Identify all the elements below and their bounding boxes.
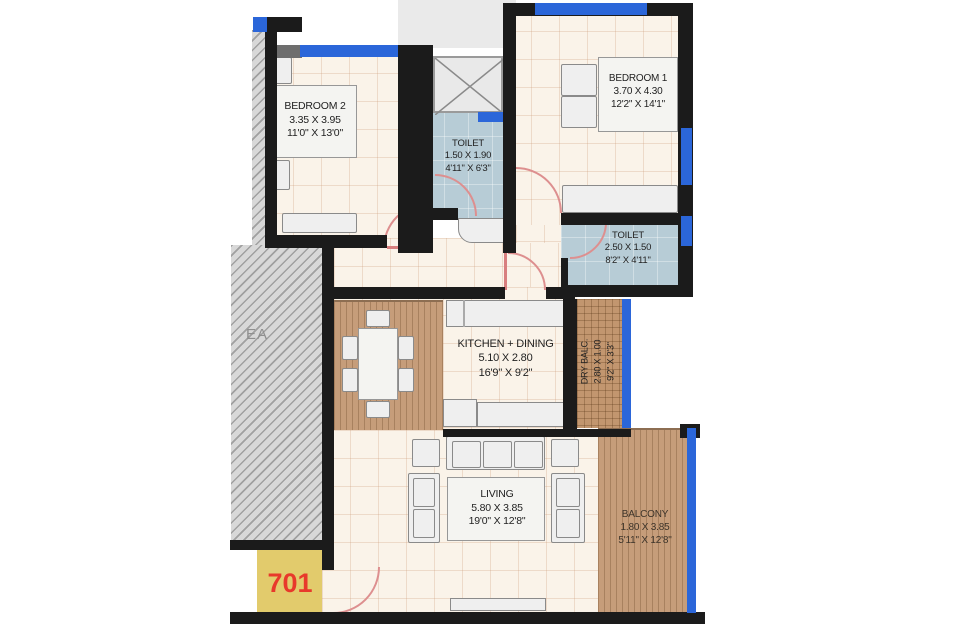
wall-step — [277, 45, 302, 58]
wall — [503, 3, 516, 253]
dining-chair — [398, 368, 414, 392]
door-arc-entry — [333, 567, 380, 614]
room-name: TOILET — [428, 138, 508, 150]
wall — [561, 213, 568, 222]
wall — [230, 540, 322, 550]
bedroom2-label: BEDROOM 2 3.35 X 3.95 11'0" X 13'0" — [272, 100, 358, 141]
window — [300, 45, 398, 57]
dresser — [561, 64, 597, 96]
wardrobe — [562, 185, 678, 213]
wall — [230, 612, 705, 624]
common-area-hatch — [231, 245, 322, 550]
dry-balcony-label: DRY BALC. 2.80 X 1.00 9'2" X 3'3" — [578, 312, 617, 412]
wardrobe — [282, 213, 357, 233]
room-name: DRY BALC. — [578, 312, 591, 412]
wall — [443, 429, 631, 437]
dining-chair — [398, 336, 414, 360]
room-dim-ft: 11'0" X 13'0" — [272, 127, 358, 141]
wall — [561, 285, 692, 297]
kitchen-counter — [443, 399, 477, 427]
dining-chair — [342, 336, 358, 360]
toilet2-label: TOILET 2.50 X 1.50 8'2" X 4'11" — [590, 230, 666, 267]
room-dim-ft: 4'11" X 6'3" — [428, 163, 508, 175]
sofa-cushion — [514, 441, 543, 468]
sofa-cushion — [452, 441, 481, 468]
room-dim-m: 5.10 X 2.80 — [443, 351, 568, 365]
dining-table — [358, 328, 398, 400]
window — [687, 428, 696, 613]
wall — [322, 245, 334, 570]
kitchen-dining-label: KITCHEN + DINING 5.10 X 2.80 16'9" X 9'2… — [443, 337, 568, 380]
window — [535, 3, 647, 15]
window — [681, 128, 692, 185]
wall — [546, 287, 575, 299]
room-name: LIVING — [448, 488, 546, 502]
door-arc-kitchen — [508, 252, 546, 290]
kitchen-counter — [477, 402, 572, 427]
wash-basin — [458, 218, 508, 243]
wall — [420, 208, 458, 220]
common-area-partial-text: EA — [246, 326, 268, 343]
room-dim-m: 3.35 X 3.95 — [272, 114, 358, 128]
room-name: BEDROOM 1 — [598, 72, 678, 85]
room-dim-ft: 19'0" X 12'8" — [448, 515, 546, 529]
sofa-cushion — [556, 509, 580, 538]
floor-plan: BEDROOM 2 3.35 X 3.95 11'0" X 13'0" BEDR… — [0, 0, 957, 625]
sofa-cushion — [413, 478, 435, 507]
sofa-cushion — [556, 478, 580, 507]
room-dim-m: 2.80 X 1.00 — [591, 312, 604, 412]
sofa-cushion — [413, 509, 435, 538]
shaft-x-icon — [435, 58, 505, 115]
wall — [334, 287, 505, 299]
room-dim-m: 5.80 X 3.85 — [448, 502, 546, 516]
dining-chair — [366, 310, 390, 327]
unit-number: 701 — [260, 568, 320, 599]
duct-shaft — [433, 56, 503, 113]
window — [253, 17, 267, 32]
side-table — [551, 439, 579, 467]
room-name: TOILET — [590, 230, 666, 242]
dresser — [561, 96, 597, 128]
wall — [561, 258, 568, 285]
room-dim-m: 3.70 X 4.30 — [598, 85, 678, 98]
room-dim-m: 2.50 X 1.50 — [590, 242, 666, 254]
door-arc-bedroom1 — [516, 167, 562, 213]
window — [622, 299, 631, 428]
window — [681, 216, 692, 246]
toilet1-label: TOILET 1.50 X 1.90 4'11" X 6'3" — [428, 138, 508, 175]
exterior-gap — [398, 0, 516, 48]
dining-chair — [342, 368, 358, 392]
side-table — [412, 439, 440, 467]
sofa-cushion — [483, 441, 512, 468]
room-dim-ft: 9'2" X 3'3" — [605, 312, 618, 412]
room-dim-ft: 16'9" X 9'2" — [443, 366, 568, 380]
room-dim-ft: 8'2" X 4'11" — [590, 255, 666, 267]
wall — [561, 213, 685, 225]
common-area-hatch-strip — [252, 30, 265, 245]
counter-divider — [463, 300, 465, 327]
room-name: KITCHEN + DINING — [443, 337, 568, 351]
room-dim-ft: 12'2" X 14'1" — [598, 98, 678, 111]
room-dim-m: 1.50 X 1.90 — [428, 150, 508, 162]
tv-unit — [450, 598, 546, 611]
room-dim-ft: 5'11" X 12'8" — [605, 534, 685, 547]
dining-chair — [366, 401, 390, 418]
bedroom1-label: BEDROOM 1 3.70 X 4.30 12'2" X 14'1" — [598, 72, 678, 111]
living-label: LIVING 5.80 X 3.85 19'0" X 12'8" — [448, 488, 546, 529]
room-name: BALCONY — [605, 508, 685, 521]
balcony-label: BALCONY 1.80 X 3.85 5'11" X 12'8" — [605, 508, 685, 547]
window — [478, 112, 503, 122]
room-dim-m: 1.80 X 3.85 — [605, 521, 685, 534]
room-name: BEDROOM 2 — [272, 100, 358, 114]
door-leaf-kitchen — [504, 252, 507, 290]
